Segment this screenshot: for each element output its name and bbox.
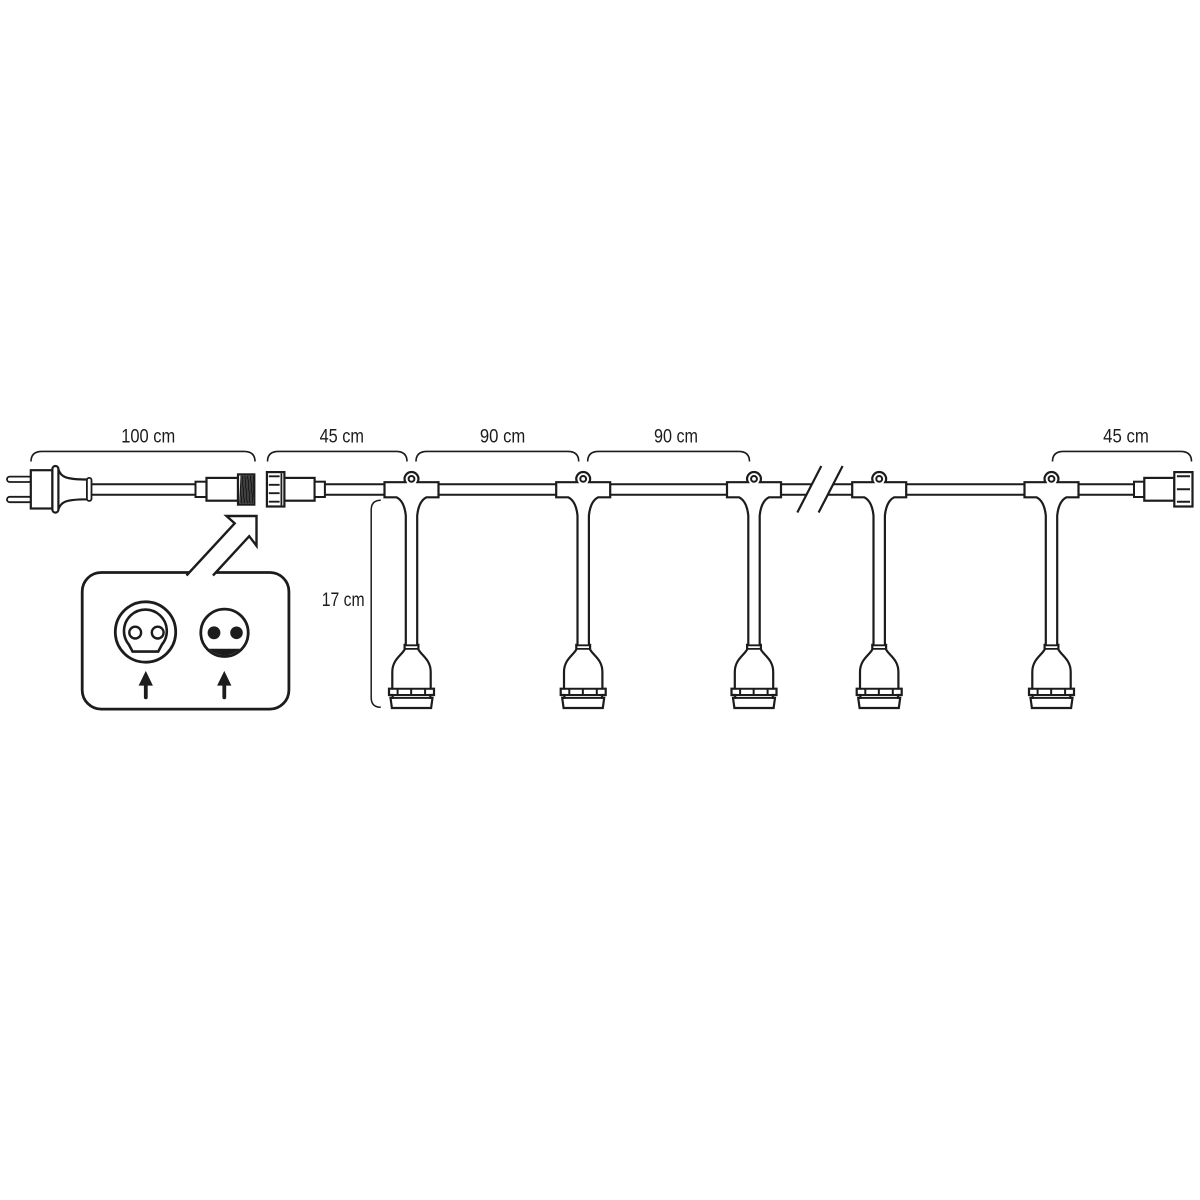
svg-text:90 cm: 90 cm xyxy=(480,427,525,448)
svg-text:17 cm: 17 cm xyxy=(322,590,365,611)
svg-text:90 cm: 90 cm xyxy=(654,427,698,448)
svg-text:45 cm: 45 cm xyxy=(1103,427,1149,448)
svg-text:45 cm: 45 cm xyxy=(320,427,364,448)
svg-text:100 cm: 100 cm xyxy=(121,427,175,448)
